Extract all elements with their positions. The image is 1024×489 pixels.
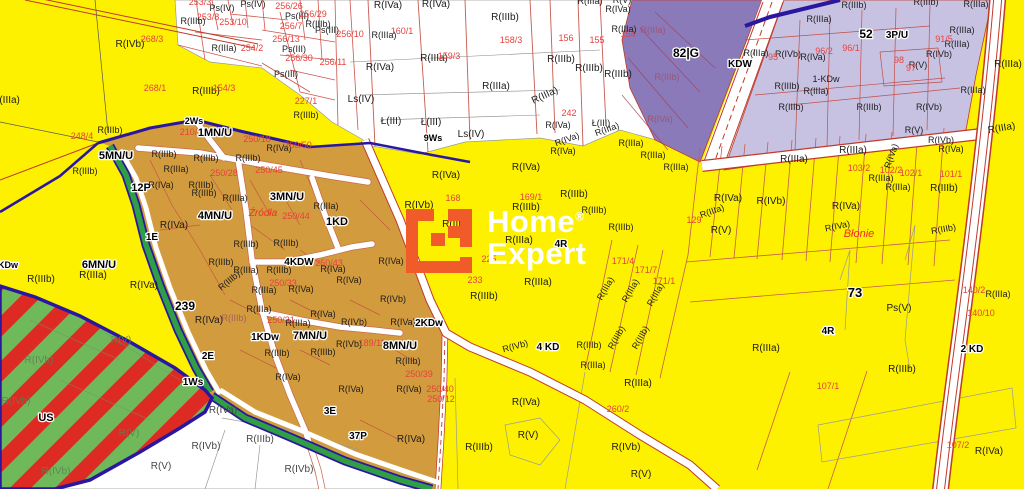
land-use-label: R(IIIa) (313, 201, 338, 211)
named-zone-label: 9Ws (424, 133, 443, 143)
parcel-number-label: 250/44 (282, 211, 310, 221)
land-use-label: 1-KDw (812, 74, 840, 84)
parcel-number-label: 129 (686, 215, 701, 225)
land-use-label: R(IVa) (605, 4, 630, 14)
faded-label: R(IVa) (647, 114, 672, 124)
land-use-label: Ł(III) (381, 116, 402, 127)
parcel-number-label: 96/1 (842, 43, 860, 53)
land-use-label: R(IIIb) (233, 239, 258, 249)
land-use-label: R(IIIa) (0, 95, 20, 106)
land-use-label: R(IIIb) (273, 238, 298, 248)
land-use-label: R(IIIb) (193, 153, 218, 163)
parcel-number-label: 102/1 (900, 168, 923, 178)
parcel-number-label: 160/1 (391, 26, 414, 36)
land-use-label: R(V) (631, 469, 652, 480)
land-use-label: R(IIIb) (888, 364, 916, 375)
named-zone-label: 1KD (326, 216, 348, 228)
land-use-label: R(IVb) (916, 102, 942, 112)
parcel-number-label: 159/3 (438, 51, 461, 61)
land-use-label: R(IIIa) (803, 86, 828, 96)
named-zone-label: 8MN/U (383, 340, 417, 352)
land-use-label: Ps(III) (274, 69, 298, 79)
parcel-type-label: R(IVb) (285, 464, 314, 475)
land-use-label: R(IVa) (397, 434, 425, 445)
land-use-label: Ps(IV) (240, 0, 265, 9)
land-use-label: R(IIIb) (208, 257, 233, 267)
land-use-label: R(IIIb) (27, 274, 55, 285)
parcel-number-label: 250/45 (255, 165, 283, 175)
land-use-label: Ls(IV) (458, 129, 485, 140)
named-zone-label: 2KDw (415, 318, 443, 329)
parcel-number-label: 95 (768, 52, 778, 62)
parcel-number-label: 254/2 (241, 43, 264, 53)
land-use-label: R(IVb) (341, 317, 367, 327)
land-use-label: R(IIIa) (806, 14, 831, 24)
land-use-label: R(IVa) (832, 201, 860, 212)
land-use-label: R(IVb) (775, 49, 801, 59)
named-zone-label: 1E (146, 232, 159, 243)
land-use-label: R(IVa) (288, 284, 313, 294)
named-zone-label: 3E (324, 406, 337, 417)
land-use-label: R(IVa) (396, 384, 421, 394)
parcel-type-label: R(IVb) (2, 396, 31, 407)
land-use-label: R(IVb) (405, 200, 434, 211)
parcel-number-label: 96/2 (815, 46, 833, 56)
named-zone-label: 239 (175, 299, 195, 313)
land-use-label: R(IIIb) (576, 340, 601, 350)
named-zone-label: 1MN/U (198, 127, 232, 139)
land-use-label: R(IIIb) (470, 291, 498, 302)
land-use-label: R(IIIa) (780, 154, 808, 165)
parcel-number-label: 168 (445, 193, 460, 203)
named-zone-label: US (38, 412, 53, 424)
land-use-label: Ł(III) (421, 117, 442, 128)
land-use-label: R(IIIa) (222, 193, 247, 203)
land-use-label: R(IVb) (380, 294, 406, 304)
land-use-label: R(IVb) (757, 196, 786, 207)
named-zone-label: KDw (0, 260, 19, 270)
land-use-label: R(IIIb) (151, 149, 176, 159)
land-use-label: R(IIIb) (547, 54, 575, 65)
named-zone-label: 2 KD (961, 344, 984, 355)
parcel-number-label: 140/10 (967, 308, 995, 318)
parcel-number-label: 253/3 (189, 0, 212, 7)
land-use-label: R(IIIa) (285, 318, 310, 328)
place-name-label: Źródła (248, 206, 278, 219)
land-use-label: R(IIIa) (611, 24, 636, 34)
land-use-label: R(IIIa) (246, 304, 271, 314)
parcel-number-label: 156 (558, 33, 573, 43)
land-use-label: R(IIIb) (491, 12, 519, 23)
land-use-label: R(IIIa) (624, 378, 652, 389)
land-use-label: R(IIIa) (960, 85, 985, 95)
faded-label: R(IIIb) (221, 313, 246, 323)
named-zone-label: 3P/U (886, 30, 908, 41)
land-use-label: R(IIIb) (465, 442, 493, 453)
named-zone-label: 2E (202, 351, 215, 362)
land-use-label: R(IIIb) (512, 202, 540, 213)
faded-label: R(IIIb) (654, 72, 679, 82)
land-use-label: R(IVa) (545, 120, 570, 130)
land-use-label: R(IVa) (432, 170, 460, 181)
land-use-label: R(IIIa) (640, 150, 665, 160)
land-use-label: R(IIIb) (856, 102, 881, 112)
parcel-number-label: 233 (467, 275, 482, 285)
named-zone-label: 4R (555, 239, 569, 250)
parcel-number-label: 242 (561, 108, 576, 118)
parcel-number-label: 107/2 (947, 440, 970, 450)
parcel-type-label: R(V) (119, 428, 140, 439)
land-use-label: Ps(V) (887, 303, 912, 314)
land-use-label: R(IVa) (714, 193, 742, 204)
land-use-label: R(IVa) (310, 309, 335, 319)
named-zone-label: 73 (848, 285, 862, 300)
parcel-number-label: 250/12 (427, 394, 455, 404)
land-use-label: R(IVa) (550, 146, 575, 156)
land-use-label: R(IVa) (390, 317, 415, 327)
land-use-label: R(IIIa) (994, 59, 1022, 70)
land-use-label: R(IIIb) (841, 0, 866, 10)
land-use-label: R(IVb) (612, 442, 641, 453)
parcel-number-label: 189/11 (359, 338, 386, 348)
parcel-number-label: 253/10 (219, 17, 247, 27)
land-use-label: R(IIIb) (72, 166, 97, 176)
parcel-number-label: 256/10 (336, 29, 364, 39)
land-use-label: R(IIIb) (913, 0, 938, 7)
land-use-label: R(IIIa) (79, 270, 107, 281)
land-use-label: R(IVa) (366, 62, 394, 73)
named-zone-label: 3MN/U (270, 191, 304, 203)
named-zone-label: KDW (728, 59, 752, 70)
parcel-number-label: 171/7 (635, 265, 658, 275)
land-use-label: R(IVa) (422, 0, 450, 10)
land-use-label: Ls(IV) (348, 94, 375, 105)
land-use-label: R(IIIb) (442, 219, 470, 230)
land-use-label: R(IIIb) (604, 69, 632, 80)
map-canvas[interactable]: Ps(IV)Ps(IV)253/3256/26253/10253/8R(IIIb… (0, 0, 1024, 489)
parcel-number-label: 107/1 (817, 381, 840, 391)
parcel-number-label: 227/1 (295, 96, 318, 106)
zoning-map[interactable]: Ps(IV)Ps(IV)253/3256/26253/10253/8R(IIIb… (0, 0, 1024, 489)
parcel-number-label: 154/3 (213, 83, 236, 93)
land-use-label: R(V) (518, 430, 539, 441)
land-use-label: R(IVa) (338, 384, 363, 394)
land-use-label: R(IIIa) (885, 182, 910, 192)
parcel-number-label: 250/50 (284, 140, 312, 150)
parcel-number-label: 250/40 (426, 384, 454, 394)
land-use-label: R(V) (613, 0, 632, 5)
named-zone-label: 52 (859, 27, 873, 41)
parcel-number-label: 98 (894, 55, 904, 65)
parcel-number-label: 256/29 (299, 9, 327, 19)
land-use-label: R(IIIb) (310, 347, 335, 357)
land-use-label: R(IVa) (275, 372, 300, 382)
land-use-label: R(IIIb) (191, 188, 216, 198)
named-zone-label: 7MN/U (293, 330, 327, 342)
land-use-label: R(V) (905, 125, 924, 135)
land-use-label: R(IVb) (926, 49, 952, 59)
land-use-label: R(IIIb) (395, 356, 420, 366)
land-use-label: R(IIIb) (560, 189, 588, 200)
parcel-type-label: R(IIIb) (246, 434, 274, 445)
parcel-number-label: 171/4 (612, 256, 635, 266)
parcel-number-label: 256/11 (320, 57, 347, 67)
land-use-label: R(IVa) (975, 446, 1003, 457)
parcel-type-label: R(V) (111, 335, 132, 346)
named-zone-label: 2Ws (185, 116, 204, 126)
parcel-number-label: 250/28 (210, 168, 238, 178)
parcel-number-label: 248/4 (71, 131, 94, 141)
named-zone-label: 4 KD (537, 342, 560, 353)
parcel-type-label: R(V) (151, 461, 172, 472)
land-use-label: R(IIIa) (963, 0, 988, 9)
named-zone-label: 4R (822, 326, 836, 337)
named-zone-label: 4KDW (284, 257, 314, 268)
place-name-label: Błonie (844, 228, 875, 240)
land-use-label: R(IIIb) (97, 125, 122, 135)
land-use-label: R(IIIa) (985, 289, 1010, 299)
land-use-label: R(IVa) (512, 162, 540, 173)
land-use-label: R(IIIa) (211, 43, 236, 53)
land-use-label: R(IIIa) (752, 343, 780, 354)
land-use-label: R(IIIb) (264, 348, 289, 358)
land-use-label: R(IVa) (374, 0, 402, 11)
parcel-number-label: 155 (589, 35, 604, 45)
land-use-label: R(IVa) (130, 280, 158, 291)
parcel-number-label: 103/2 (848, 163, 871, 173)
land-use-label: R(IIIa) (505, 235, 533, 246)
land-use-label: R(IIIa) (618, 138, 643, 148)
named-zone-label: 37P (349, 431, 367, 442)
land-use-label: R(IIIa) (577, 0, 602, 6)
land-use-label: R(IIIb) (930, 183, 958, 194)
land-use-label: R(IIIb) (235, 153, 260, 163)
land-use-label: R(IIIb) (575, 63, 603, 74)
land-use-label: R(IVa) (512, 397, 540, 408)
land-use-label: R(IIIb) (608, 222, 633, 232)
named-zone-label: 4MN/U (198, 210, 232, 222)
land-use-label: R(IIIb) (778, 102, 803, 112)
land-use-label: R(IIIb) (293, 110, 318, 120)
land-use-label: R(IIIb) (581, 205, 606, 215)
land-use-label: R(IVa) (378, 256, 403, 266)
parcel-number-label: 256/13 (272, 34, 300, 44)
faded-label: R(IIIa) (640, 25, 665, 35)
parcel-number-label: 268/3 (141, 34, 164, 44)
parcel-number-label: 250/39 (405, 369, 433, 379)
land-use-label: R(IIIb) (774, 81, 799, 91)
land-use-label: R(IIIa) (482, 81, 510, 92)
land-use-label: R(IVa) (195, 315, 223, 326)
parcel-number-label: 91/5 (935, 34, 953, 44)
parcel-type-label: R(IVb) (192, 441, 221, 452)
named-zone-label: 1KDw (251, 332, 279, 343)
parcel-type-label: R(IVb) (25, 355, 54, 366)
land-use-label: R(IIIb) (180, 16, 205, 26)
parcel-type-label: R(IVb) (42, 466, 71, 477)
named-zone-label: 82|G (673, 46, 699, 60)
land-use-label: R(IIIa) (580, 360, 605, 370)
parcel-number-label: 260/2 (607, 404, 630, 414)
parcel-number-label: 97 (906, 63, 916, 73)
land-use-label: R(IVa) (160, 220, 188, 231)
parcel-number-label: 158/3 (500, 35, 523, 45)
land-use-label: R(IIIa) (743, 48, 768, 58)
land-use-label: R(IIIa) (663, 162, 688, 172)
land-use-label: R(IVa) (938, 144, 963, 154)
named-zone-label: 1Ws (183, 377, 204, 388)
parcel-number-label: 268/1 (144, 83, 167, 93)
land-use-label: R(IVa) (320, 264, 345, 274)
land-use-label: R(IVa) (148, 180, 173, 190)
land-use-label: R(IIIa) (839, 145, 867, 156)
land-use-label: R(IIIa) (949, 25, 974, 35)
land-use-label: R(IVa) (336, 275, 361, 285)
parcel-number-label: 101/1 (940, 169, 963, 179)
land-use-label: R(IIIa) (524, 277, 552, 288)
parcel-number-label: 140/2 (963, 285, 986, 295)
parcel-number-label: 169/1 (520, 192, 543, 202)
parcel-number-label: 225 (481, 254, 496, 264)
land-use-label: R(V) (711, 225, 732, 236)
parcel-number-label: 256/30 (285, 53, 313, 63)
parcel-type-label: R(IVa) (209, 405, 237, 416)
named-zone-label: 5MN/U (99, 150, 133, 162)
land-use-label: R(IIIa) (163, 164, 188, 174)
parcel-number-label: 256/7 (280, 21, 303, 31)
